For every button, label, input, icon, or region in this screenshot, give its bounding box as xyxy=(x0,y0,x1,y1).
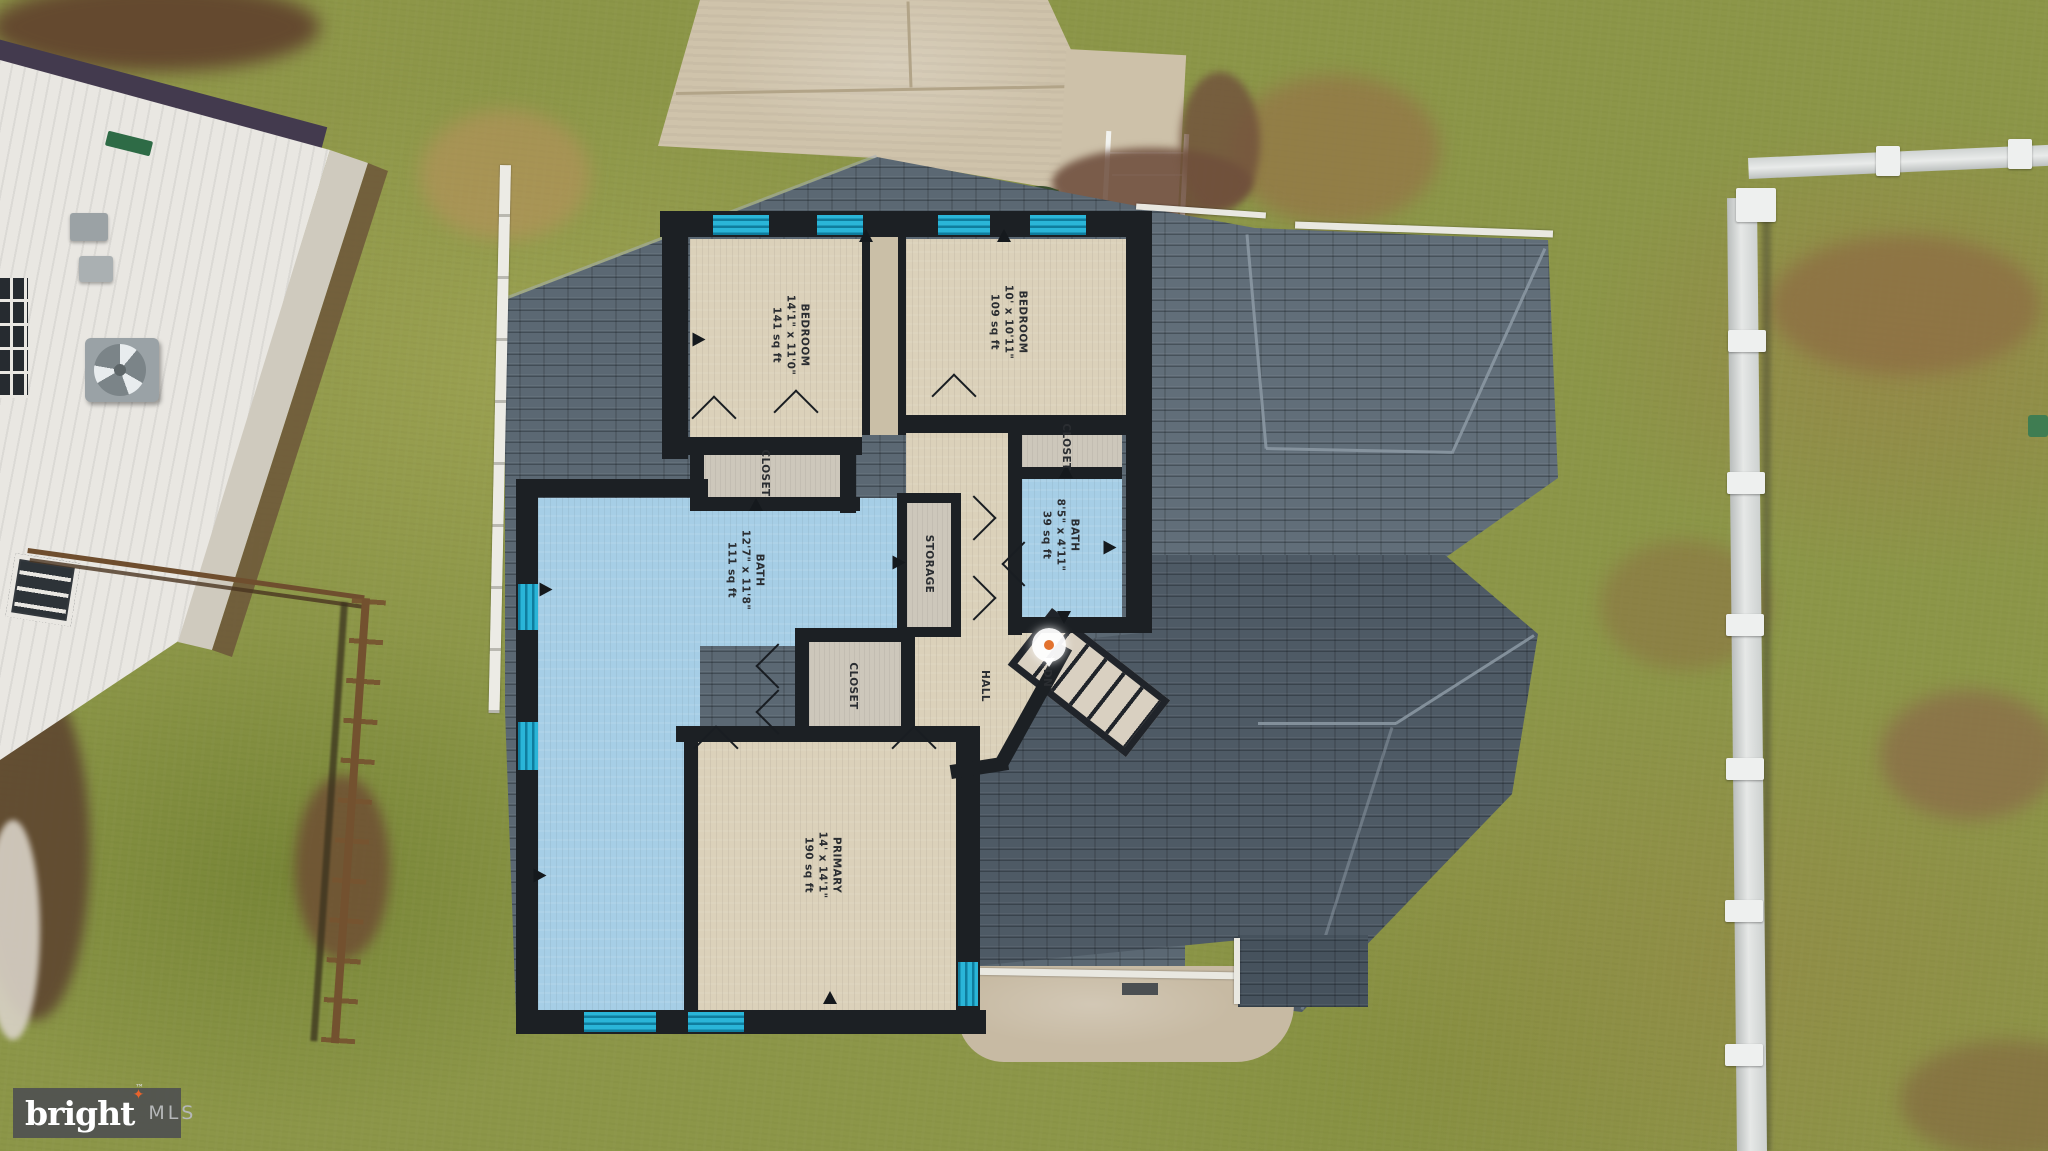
direction-arrow-icon xyxy=(997,229,1011,242)
aerial-photo: BEDROOM14'1" x 11'0"141 sq ft BEDROOM10'… xyxy=(0,0,2048,1151)
room-label-bath-right: BATH8'5" x 4'11"39 sq ft xyxy=(1039,499,1082,572)
direction-arrow-layer xyxy=(0,0,2048,1151)
room-label-closet-middle: CLOSET xyxy=(846,662,860,709)
room-label-bedroom-2: BEDROOM10' x 10'11"109 sq ft xyxy=(987,285,1030,360)
room-label-bedroom-1: BEDROOM14'1" x 11'0"141 sq ft xyxy=(769,295,812,376)
room-label-closet-right: CLOSET xyxy=(1059,423,1073,470)
direction-arrow-icon xyxy=(693,333,706,347)
direction-arrow-icon xyxy=(859,229,873,242)
direction-arrow-icon xyxy=(749,498,763,511)
brightmls-logo: bright✦™ xyxy=(25,1094,141,1133)
direction-arrow-icon xyxy=(823,991,837,1004)
direction-arrow-icon xyxy=(893,556,906,570)
direction-arrow-icon xyxy=(1104,541,1117,555)
room-label-primary: PRIMARY14' x 14'1"190 sq ft xyxy=(801,832,844,899)
direction-arrow-icon xyxy=(1057,611,1071,624)
room-label-bath-left: BATH12'7" x 11'8"111 sq ft xyxy=(724,530,767,611)
direction-arrow-icon xyxy=(534,869,547,883)
floor-plan-overlay: BEDROOM14'1" x 11'0"141 sq ft BEDROOM10'… xyxy=(0,0,2048,1151)
room-label-storage: STORAGE xyxy=(922,535,936,593)
brightmls-logo-suffix: MLS xyxy=(148,1102,196,1124)
direction-arrow-icon xyxy=(540,583,553,597)
room-label-hall: HALL xyxy=(978,670,992,702)
brightmls-watermark: bright✦™ MLS xyxy=(13,1088,181,1138)
room-label-closet-left: CLOSET xyxy=(758,449,772,496)
room-label-stairs-dn: DN xyxy=(1040,669,1054,687)
camera-360-icon xyxy=(1032,628,1066,662)
